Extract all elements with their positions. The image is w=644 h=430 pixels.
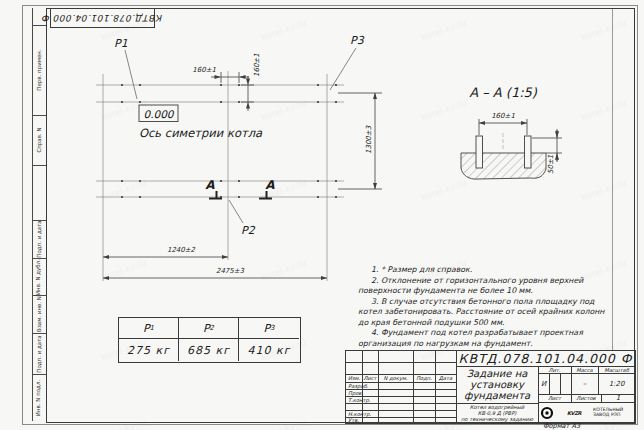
- format-label: Формат А3: [543, 422, 580, 430]
- p-base: P: [203, 322, 210, 335]
- tb-line: [560, 373, 561, 394]
- note-4: 4. Фундамент под котел разрабатывает про…: [358, 328, 616, 349]
- tb-row-utv: Утв.: [346, 417, 380, 423]
- tb-row-tkontr: Т.контр.: [346, 396, 380, 403]
- tb-title-line3: фундамента: [456, 389, 538, 401]
- section-letter-left: А: [205, 178, 215, 192]
- p-sub: 2: [210, 324, 214, 332]
- tb-scale-value: 1:20: [598, 373, 635, 394]
- title-block: Изм. Лист N докум. Подп. Дата Разраб. Пр…: [345, 350, 636, 424]
- concrete-pad: [461, 153, 546, 179]
- notes-block: 1. * Размер для справок. 2. Отклонение о…: [358, 265, 616, 351]
- tb-lit-label: Лит.: [538, 366, 571, 373]
- tb-line: [435, 351, 436, 423]
- note-2: 2. Отклонение от горизонтального уровня …: [358, 276, 616, 297]
- kvzr-logo-icon: [540, 404, 554, 421]
- tb-col-data: Дата: [435, 374, 456, 382]
- load-value-p3: 410 кг: [239, 339, 299, 361]
- tb-col-ndokum: N докум.: [378, 374, 413, 382]
- tb-col-izm: Изм.: [346, 374, 362, 382]
- load-table-header-p3: P3: [239, 318, 299, 339]
- dim-160-horizontal: 160±1: [192, 66, 216, 74]
- point-label-p2: P2: [241, 224, 256, 237]
- p-sub: 3: [270, 324, 274, 332]
- tb-sheets-value: 1: [601, 394, 635, 402]
- p-sub: 1: [150, 324, 154, 332]
- anchor-bolt-right: [525, 136, 532, 168]
- tb-row-blank: [346, 403, 380, 410]
- dim-1300: 1300±3: [365, 125, 373, 154]
- point-label-p1: P1: [114, 37, 128, 50]
- section-title: А – А (1:5): [469, 85, 538, 100]
- section-cut-marks: [209, 191, 272, 199]
- load-table: P1 P2 P3 275 кг 685 кг 410 кг: [118, 317, 301, 363]
- load-table-header-p2: P2: [179, 318, 239, 339]
- point-label-p3: P3: [350, 34, 365, 47]
- tb-line: [538, 402, 635, 403]
- tb-sheet-label: Лист: [538, 394, 571, 402]
- load-value-p1: 275 кг: [119, 339, 179, 361]
- dim-section-50: 50±1: [547, 155, 555, 174]
- tb-scale-label: Масштаб: [598, 366, 635, 373]
- tb-line: [413, 351, 414, 423]
- level-mark: 0.000: [143, 108, 174, 120]
- tb-product-line3: по техническому заданию: [456, 415, 538, 422]
- company-name-line2: ЗАВОД РЭП: [593, 412, 635, 417]
- note-1: 1. * Размер для справок.: [358, 265, 616, 276]
- company-name: КОТЕЛЬНЫЙ ЗАВОД РЭП: [593, 404, 635, 424]
- plan-axis-lines: [96, 71, 344, 281]
- dim-160-vertical: 160±1: [253, 53, 261, 77]
- tb-mass-label: Масса: [571, 366, 598, 373]
- tb-row-razrab: Разраб.: [346, 382, 380, 389]
- load-table-header-p1: P1: [119, 318, 179, 339]
- plan-dimensions: [103, 72, 382, 278]
- dim-2475: 2475±3: [216, 267, 245, 275]
- tb-col-list: Лист: [362, 374, 378, 382]
- anchor-bolt-left: [476, 136, 483, 168]
- drawing-sheet: kotel-kv.rukotel-kv.rukotel-kv.rukotel-k…: [0, 0, 644, 430]
- tb-col-podp: Подп.: [413, 374, 435, 382]
- dim-1240: 1240±2: [167, 246, 196, 254]
- tb-row-nkontr: Н.контр.: [346, 410, 380, 417]
- dim-section-160: 160±1: [491, 112, 515, 120]
- p-base: P: [143, 322, 150, 335]
- tb-lit-value: И: [538, 373, 549, 394]
- tb-sheets-label: Листов: [571, 394, 601, 402]
- tb-doc-number: КВТД.078.101.04.000 Ф: [456, 351, 635, 366]
- tb-line: [549, 373, 550, 394]
- section-letter-right: А: [265, 178, 275, 192]
- tb-row-prov: Пров.: [346, 389, 380, 396]
- note-3: 3. В случае отсутствия бетонного пола пл…: [358, 297, 616, 329]
- symmetry-axis-label: Ось симетрии котла: [139, 126, 263, 140]
- p-base: P: [263, 322, 270, 335]
- tb-mass-value: –: [571, 373, 598, 394]
- kvzr-logo-text: KVZR: [555, 404, 593, 421]
- load-value-p2: 685 кг: [179, 339, 239, 361]
